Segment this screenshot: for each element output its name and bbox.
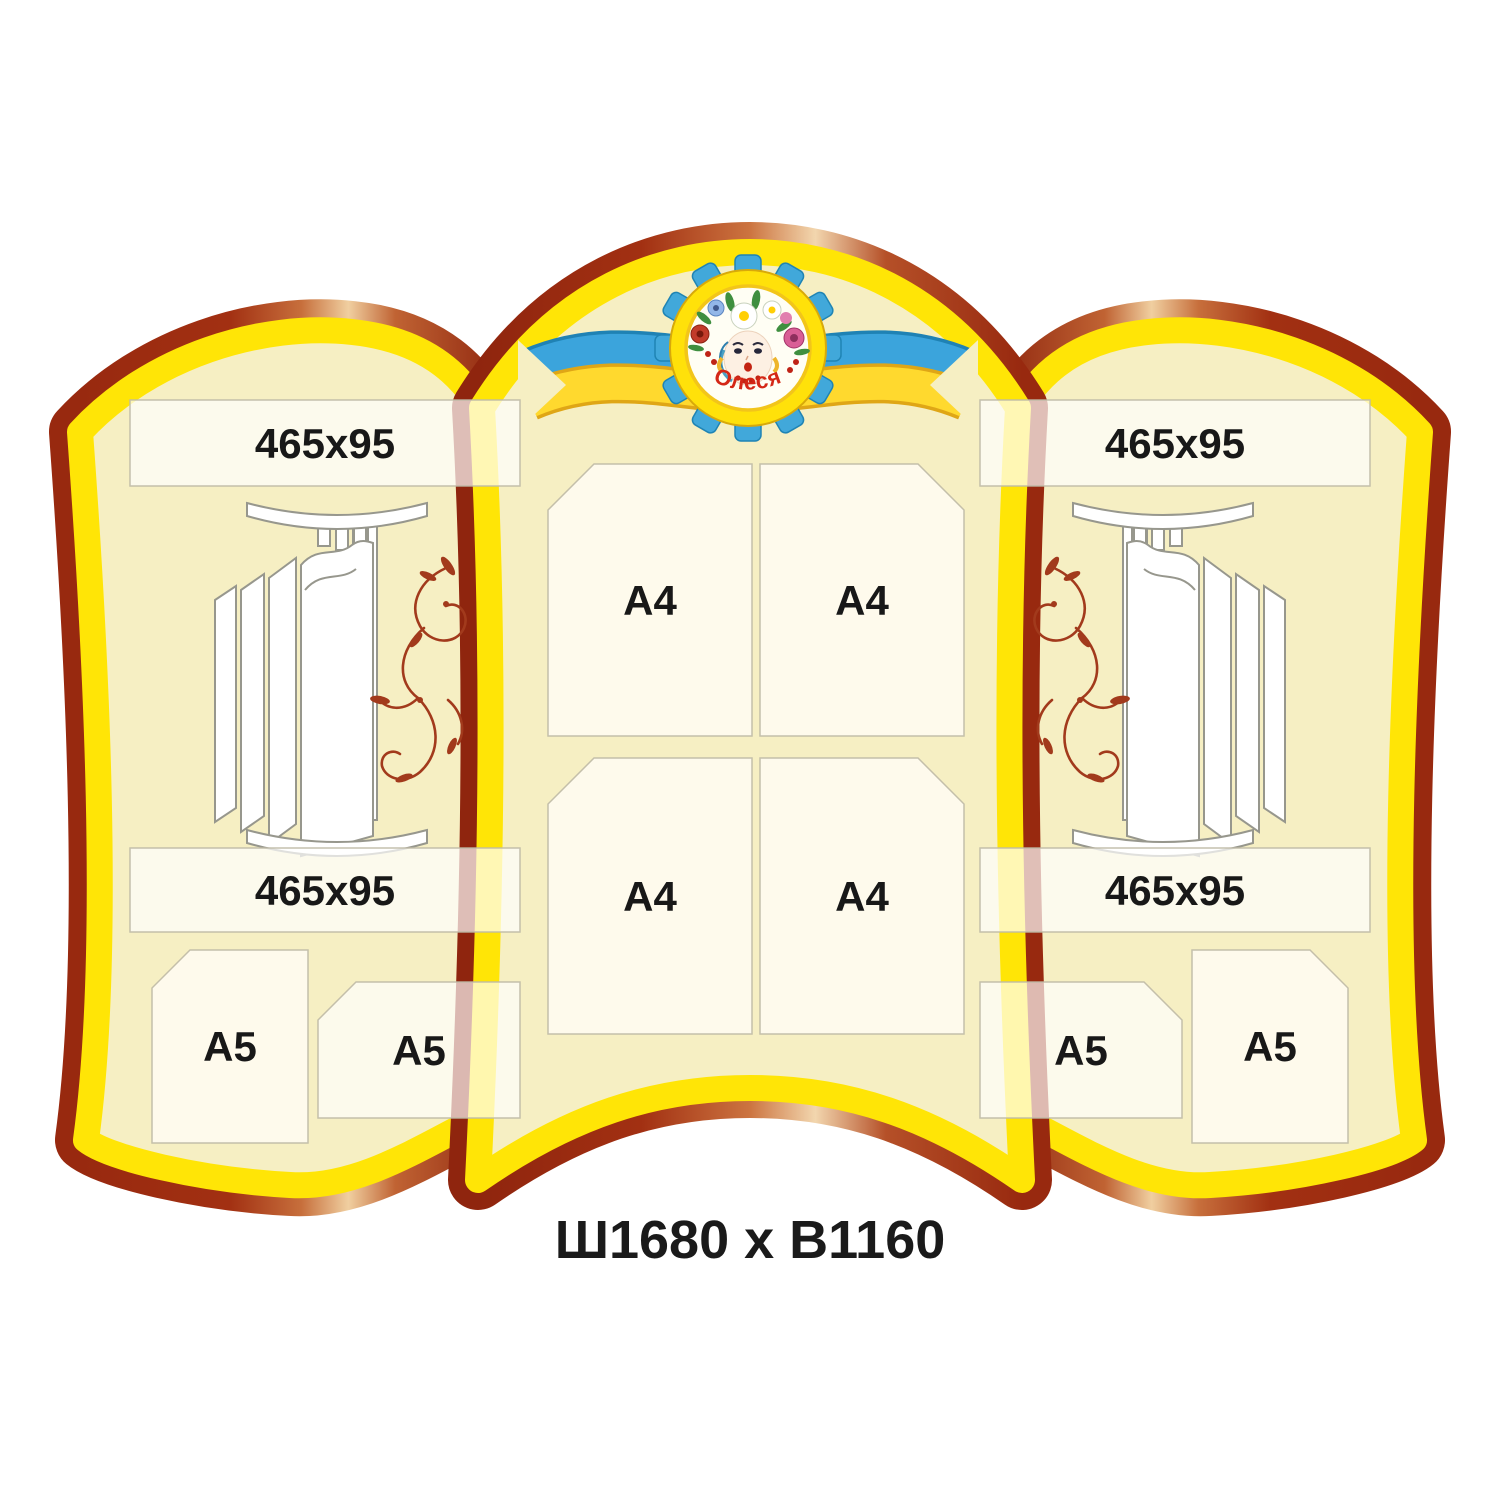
banner-left-bottom-label: 465x95: [255, 867, 395, 914]
a5-left-inner-label: A5: [392, 1027, 446, 1074]
a4-top-right-label: A4: [835, 577, 889, 624]
a5-left-outer-label: A5: [203, 1023, 257, 1070]
red-flower-center: [697, 331, 704, 338]
pink-flower-small: [780, 312, 792, 324]
a4-top-left-label: A4: [623, 577, 677, 624]
a4-bottom-left-label: A4: [623, 873, 677, 920]
daisy-small-center: [769, 307, 776, 314]
daisy-center: [739, 311, 749, 321]
banner-right-top-label: 465x95: [1105, 420, 1245, 467]
stand-mockup: Олеся 465x95 465x95 465x95 465x95 A4 A4 …: [0, 0, 1500, 1500]
a4-bottom-right-label: A4: [835, 873, 889, 920]
pink-flower-center: [790, 334, 798, 342]
banner-right-bottom-label: 465x95: [1105, 867, 1245, 914]
blue-flower-center: [713, 305, 719, 311]
banner-left-top-label: 465x95: [255, 420, 395, 467]
board-graphic: Олеся 465x95 465x95 465x95 465x95 A4 A4 …: [0, 0, 1500, 1500]
a5-right-inner-label: A5: [1054, 1027, 1108, 1074]
a5-right-outer-label: A5: [1243, 1023, 1297, 1070]
dimensions-label: Ш1680 х В1160: [555, 1210, 946, 1270]
